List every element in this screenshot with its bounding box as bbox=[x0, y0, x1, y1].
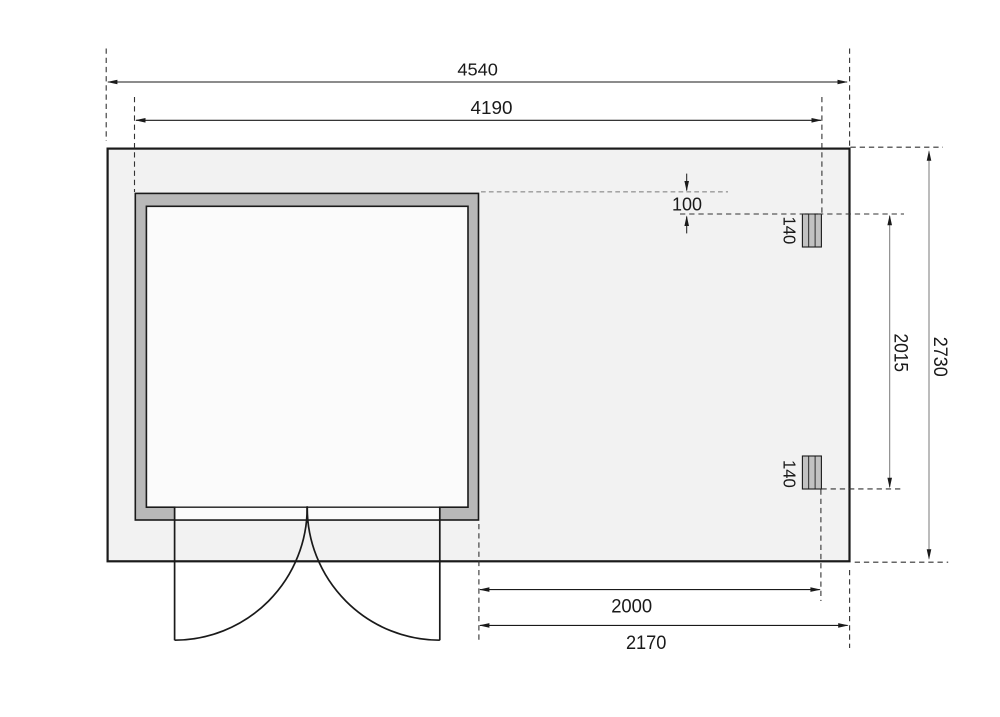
svg-text:4190: 4190 bbox=[471, 98, 513, 118]
svg-text:140: 140 bbox=[780, 216, 800, 244]
svg-text:100: 100 bbox=[672, 193, 702, 214]
svg-text:2015: 2015 bbox=[890, 333, 912, 372]
svg-text:4540: 4540 bbox=[457, 60, 498, 80]
svg-text:2170: 2170 bbox=[626, 632, 667, 654]
svg-text:2000: 2000 bbox=[611, 595, 652, 617]
svg-text:2730: 2730 bbox=[929, 337, 951, 377]
svg-text:140: 140 bbox=[780, 460, 800, 488]
